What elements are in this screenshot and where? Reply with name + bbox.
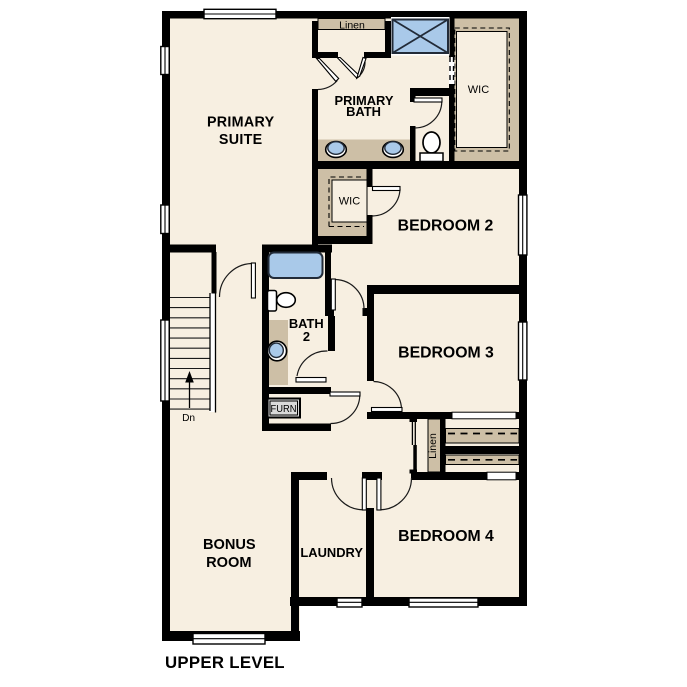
svg-text:SUITE: SUITE [219, 132, 263, 148]
svg-text:WIC: WIC [468, 84, 489, 96]
svg-text:Linen: Linen [339, 20, 365, 32]
svg-text:WIC: WIC [339, 195, 360, 207]
svg-text:ROOM: ROOM [206, 555, 251, 571]
svg-text:BONUS: BONUS [203, 537, 256, 553]
svg-text:Dn: Dn [182, 413, 195, 424]
svg-text:2: 2 [303, 329, 310, 344]
svg-text:UPPER LEVEL: UPPER LEVEL [165, 653, 285, 672]
svg-text:BEDROOM 4: BEDROOM 4 [398, 528, 494, 545]
svg-text:BEDROOM 3: BEDROOM 3 [398, 344, 494, 361]
svg-text:Linen: Linen [427, 433, 439, 459]
svg-text:LAUNDRY: LAUNDRY [300, 545, 363, 560]
svg-text:BATH: BATH [346, 104, 381, 119]
svg-text:PRIMARY: PRIMARY [207, 115, 275, 131]
svg-text:BEDROOM 2: BEDROOM 2 [398, 218, 494, 235]
svg-text:FURN: FURN [271, 403, 297, 415]
